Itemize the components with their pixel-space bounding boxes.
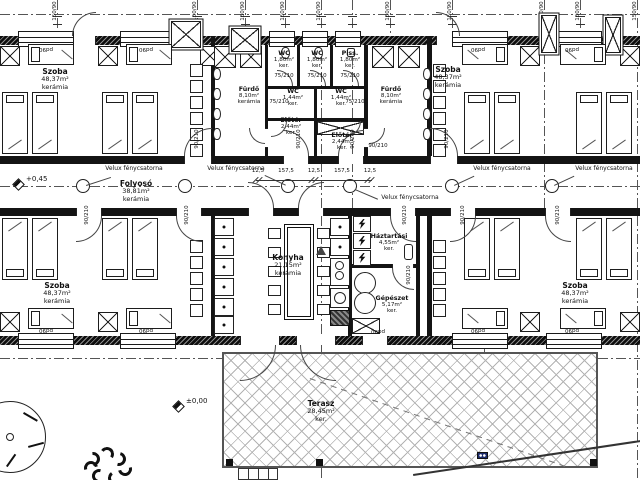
dim-label: 12,5 — [302, 168, 326, 174]
pier — [0, 312, 20, 332]
chair — [268, 285, 281, 296]
chimney-shaft — [171, 21, 201, 48]
pier — [98, 46, 118, 66]
grid-tick — [576, 24, 585, 25]
door-opening — [240, 336, 280, 345]
room-floor: kerámia — [542, 298, 608, 305]
velux-skylight — [76, 179, 90, 193]
window — [546, 333, 602, 349]
bed-pillow — [106, 269, 124, 277]
grid-dim-tag: 150/90 — [632, 0, 638, 22]
bed-pillow — [136, 95, 154, 103]
room-floor: kerámia — [255, 270, 321, 277]
window-tag: pd90 — [136, 327, 156, 333]
window-tag: pd90 — [562, 327, 582, 333]
grid-tick — [53, 24, 62, 25]
bed-pillow — [31, 311, 40, 326]
room-floor: kerámia — [22, 84, 88, 91]
toilet-icon — [423, 88, 431, 100]
washer-icon — [353, 216, 371, 232]
room-label-haztartasi: Háztartási4,55m²ker. — [356, 233, 422, 253]
room-name: WC — [308, 88, 374, 95]
door-opening — [430, 156, 458, 164]
bed-pillow — [36, 95, 54, 103]
room-floor: ker. — [317, 63, 383, 69]
grid-dim-tag: 150/90 — [192, 0, 198, 22]
kitchen-appliance — [330, 310, 350, 326]
level-marker-icon — [12, 178, 25, 191]
velux-label: Velux fénycsatorna — [376, 195, 444, 202]
wardrobe — [433, 272, 446, 285]
chair — [317, 285, 330, 296]
bed-pillow — [610, 269, 628, 277]
door-tag: 90/210 — [402, 204, 408, 226]
grid-dim-tag: 150/90 — [575, 0, 581, 22]
chimney-shaft — [605, 17, 621, 53]
room-floor: kerámia — [24, 298, 90, 305]
toilet-icon — [423, 108, 431, 120]
door-tag: 90/210 — [406, 264, 412, 286]
velux-skylight — [343, 179, 357, 193]
door-tag: 90/210 — [350, 128, 356, 150]
pier — [98, 312, 118, 332]
window — [18, 333, 74, 349]
door-tag: 75/210 — [339, 73, 361, 79]
bed-pillow — [468, 95, 486, 103]
room-name: Előtér — [258, 117, 324, 124]
floor-plan: 150/90150/90150/90150/90150/90150/90150/… — [0, 0, 640, 480]
chair — [317, 228, 330, 239]
terrace-post — [590, 459, 597, 466]
room-label-szoba-br: Szoba48,37m²kerámia — [542, 282, 608, 305]
pier — [620, 46, 640, 66]
grid-dim-tag: 150/90 — [316, 0, 322, 22]
pier — [520, 312, 540, 332]
room-name: Háztartási — [356, 233, 422, 240]
room-label-szoba-bl: Szoba48,37m²kerámia — [24, 282, 90, 305]
room-label-szoba-tl: Szoba48,37m²kerámia — [22, 68, 88, 91]
window — [452, 333, 508, 349]
shower-tray — [398, 46, 420, 68]
steps — [238, 468, 278, 480]
bed-pillow — [496, 47, 505, 62]
window-tag: pd90 — [36, 327, 56, 333]
bed-pillow — [6, 95, 24, 103]
window — [302, 31, 328, 47]
bed-pillow — [6, 269, 24, 277]
wardrobe — [433, 96, 446, 109]
room-name: Gépészet — [359, 295, 425, 302]
bed-pillow — [36, 269, 54, 277]
grid-tick — [348, 24, 357, 25]
room-label-konyha: Konyha21,15m²kerámia — [255, 254, 321, 277]
bed-pillow — [580, 269, 598, 277]
grid-axis — [637, 0, 638, 480]
velux-skylight — [178, 179, 192, 193]
level-label: +0,45 — [26, 176, 66, 184]
grid-dim-tag: 150/90 — [52, 0, 58, 22]
toilet-icon — [213, 68, 221, 80]
wardrobe — [190, 96, 203, 109]
terrace — [222, 352, 598, 468]
door-tag: 75/210 — [344, 99, 366, 105]
sink-bowl — [335, 271, 344, 280]
wardrobe — [433, 240, 446, 253]
bed-pillow — [496, 311, 505, 326]
door-tag: 90/210 — [84, 204, 90, 226]
bed-pillow — [610, 95, 628, 103]
level-marker-icon — [172, 400, 185, 413]
grid-axis — [598, 358, 640, 359]
pier — [520, 46, 540, 66]
counter-unit — [214, 238, 234, 256]
velux-label: Velux fénycsatorna — [202, 166, 270, 173]
bed-pillow — [498, 269, 516, 277]
boiler — [354, 272, 376, 294]
bed-pillow — [129, 311, 138, 326]
chair — [268, 304, 281, 315]
sink-bowl — [335, 261, 344, 270]
door-opening — [72, 36, 96, 45]
door-tag: 75/210 — [273, 73, 295, 79]
wardrobe — [433, 288, 446, 301]
pier — [0, 46, 20, 66]
bed-pillow — [580, 95, 598, 103]
door-tag: 90/210 — [184, 204, 190, 226]
counter-unit — [214, 218, 234, 236]
door-tag: 90/210 — [444, 128, 450, 150]
chair — [268, 228, 281, 239]
velux-skylight — [281, 179, 295, 193]
terrace-post — [316, 459, 323, 466]
door-tag: 90/210 — [194, 128, 200, 150]
counter-unit — [330, 238, 350, 256]
interior-wall — [427, 216, 432, 336]
room-name: Előtér — [309, 132, 375, 139]
door-tag: 75/210 — [306, 73, 328, 79]
counter-unit — [214, 258, 234, 276]
grid-tick — [241, 24, 250, 25]
door-opening — [338, 156, 364, 164]
wardrobe — [433, 112, 446, 125]
room-floor: ker. — [288, 416, 354, 423]
terrace-post — [226, 459, 233, 466]
door-arc — [72, 12, 96, 36]
leader-line — [355, 189, 378, 200]
wardrobe — [190, 272, 203, 285]
grid-tick — [348, 16, 357, 17]
door-tag: 90/210 — [460, 204, 466, 226]
stove-burner — [334, 292, 346, 304]
window-tag: pd90 — [468, 46, 488, 52]
wardrobe — [433, 256, 446, 269]
velux-label: Velux fénycsatorna — [468, 166, 536, 173]
bed-pillow — [498, 95, 516, 103]
bed-pillow — [106, 95, 124, 103]
door-opening — [362, 336, 388, 345]
room-label-folyoso: Folyosó38,81m²kerámia — [103, 180, 169, 203]
velux-skylight — [545, 179, 559, 193]
window — [120, 333, 176, 349]
velux-label: Velux fénycsatorna — [570, 166, 638, 173]
room-floor: kerámia — [103, 196, 169, 203]
toilet-icon — [213, 108, 221, 120]
wardrobe — [190, 80, 203, 93]
door-opening — [296, 336, 336, 345]
window — [269, 31, 295, 47]
wardrobe — [190, 288, 203, 301]
tree-trunk-icon — [6, 433, 14, 441]
pier — [620, 312, 640, 332]
interior-wall — [0, 156, 640, 164]
door-opening — [283, 156, 309, 164]
grid-tick — [281, 24, 290, 25]
grid-tick — [317, 24, 326, 25]
chair — [317, 304, 330, 315]
room-label-gepeszet: Gépészet5,17m²ker. — [359, 295, 425, 315]
grid-dim-tag: 150/90 — [385, 0, 391, 22]
window-tag: pd90 — [36, 46, 56, 52]
bed-pillow — [594, 311, 603, 326]
bed-pillow — [594, 47, 603, 62]
room-label-szoba-tr: Szoba48,37m²kerámia — [415, 66, 481, 89]
velux-skylight — [445, 179, 459, 193]
window-tag: pd90 — [136, 46, 156, 52]
wardrobe — [190, 304, 203, 317]
dim-label: 157,5 — [274, 168, 298, 174]
wardrobe — [190, 256, 203, 269]
grid-dim-tag: 150/90 — [240, 0, 246, 22]
door-tag: 90/210 — [366, 143, 390, 149]
velux-label: Velux fénycsatorna — [100, 166, 168, 173]
room-name: Piss. — [317, 50, 383, 57]
chimney-shaft — [541, 15, 557, 53]
counter-unit — [330, 218, 350, 236]
dim-label: 12,5 — [358, 168, 382, 174]
door-opening — [248, 208, 274, 216]
door-tag: 75/210 — [268, 99, 290, 105]
door-opening — [184, 156, 212, 164]
wardrobe — [190, 112, 203, 125]
survey-marker — [477, 452, 488, 459]
toilet-icon — [213, 128, 221, 140]
door-opening — [298, 208, 324, 216]
wardrobe — [190, 64, 203, 77]
room-label-piss: Piss.1,80m²ker. — [317, 50, 383, 70]
bed-pillow — [468, 269, 486, 277]
window-tag: pd90 — [368, 328, 388, 334]
grid-axis — [0, 358, 222, 359]
chimney-shaft — [231, 28, 259, 52]
room-floor: kerámia — [415, 82, 481, 89]
room-floor: ker. — [356, 246, 422, 252]
dim-label: 157,5 — [330, 168, 354, 174]
level-label: ±0,00 — [186, 398, 226, 406]
counter-unit — [214, 298, 234, 316]
wardrobe — [433, 304, 446, 317]
room-floor: ker. — [359, 308, 425, 314]
door-tag: 90/210 — [555, 204, 561, 226]
grid-tick — [386, 24, 395, 25]
counter-unit — [214, 278, 234, 296]
counter-unit — [214, 316, 234, 334]
grid-dim-tag: 150/90 — [280, 0, 286, 22]
window-tag: pd90 — [468, 327, 488, 333]
window — [335, 31, 361, 47]
window-tag: pd90 — [562, 46, 582, 52]
door-tag: 90/210 — [296, 128, 302, 150]
room-label-terasz: Terasz28,45m²ker. — [288, 400, 354, 423]
bed-pillow — [136, 269, 154, 277]
